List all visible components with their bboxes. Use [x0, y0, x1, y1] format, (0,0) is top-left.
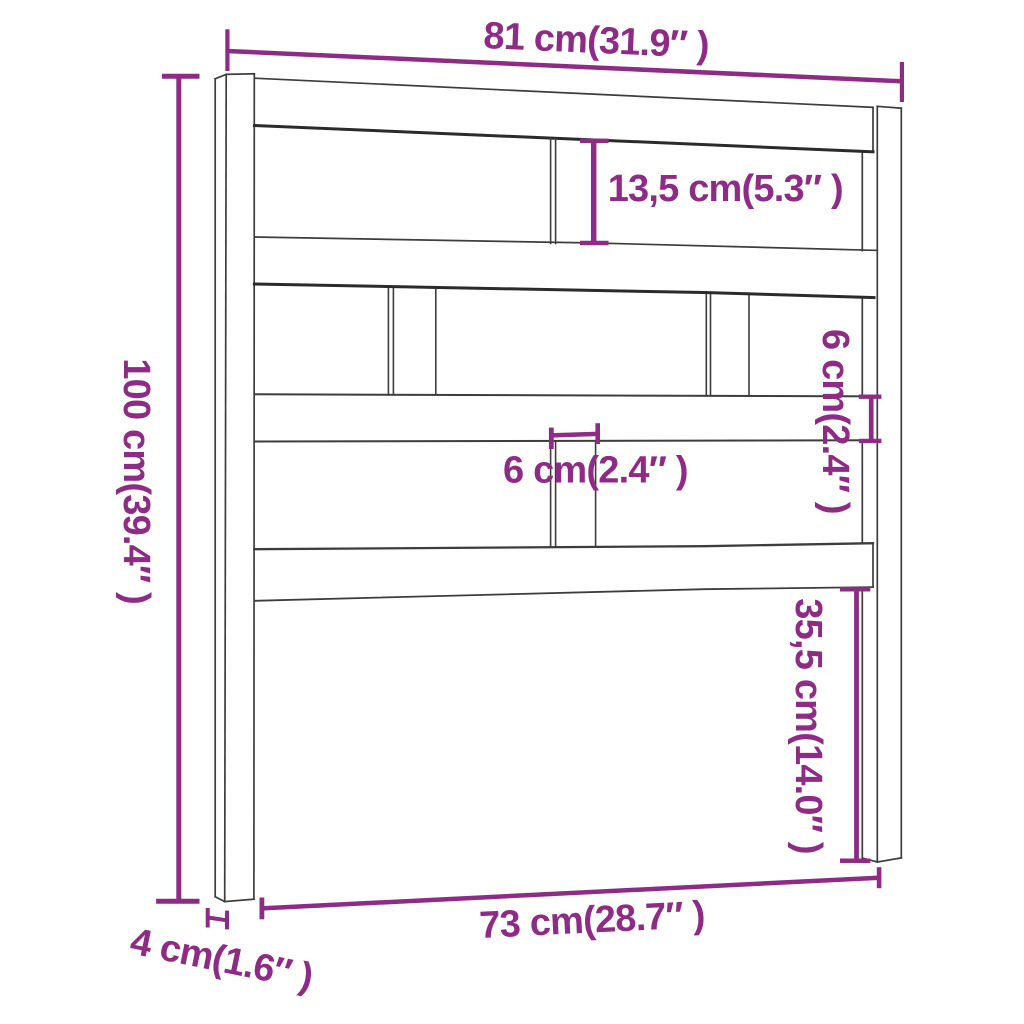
svg-text:6 cm(2.4″ ): 6 cm(2.4″ )	[814, 329, 856, 514]
svg-text:13,5 cm(5.3″ ): 13,5 cm(5.3″ )	[608, 168, 843, 210]
svg-text:100 cm(39.4″ ): 100 cm(39.4″ )	[115, 358, 157, 604]
svg-text:35,5 cm(14.0″ ): 35,5 cm(14.0″ )	[787, 598, 829, 853]
svg-text:6 cm(2.4″ ): 6 cm(2.4″ )	[503, 449, 688, 491]
